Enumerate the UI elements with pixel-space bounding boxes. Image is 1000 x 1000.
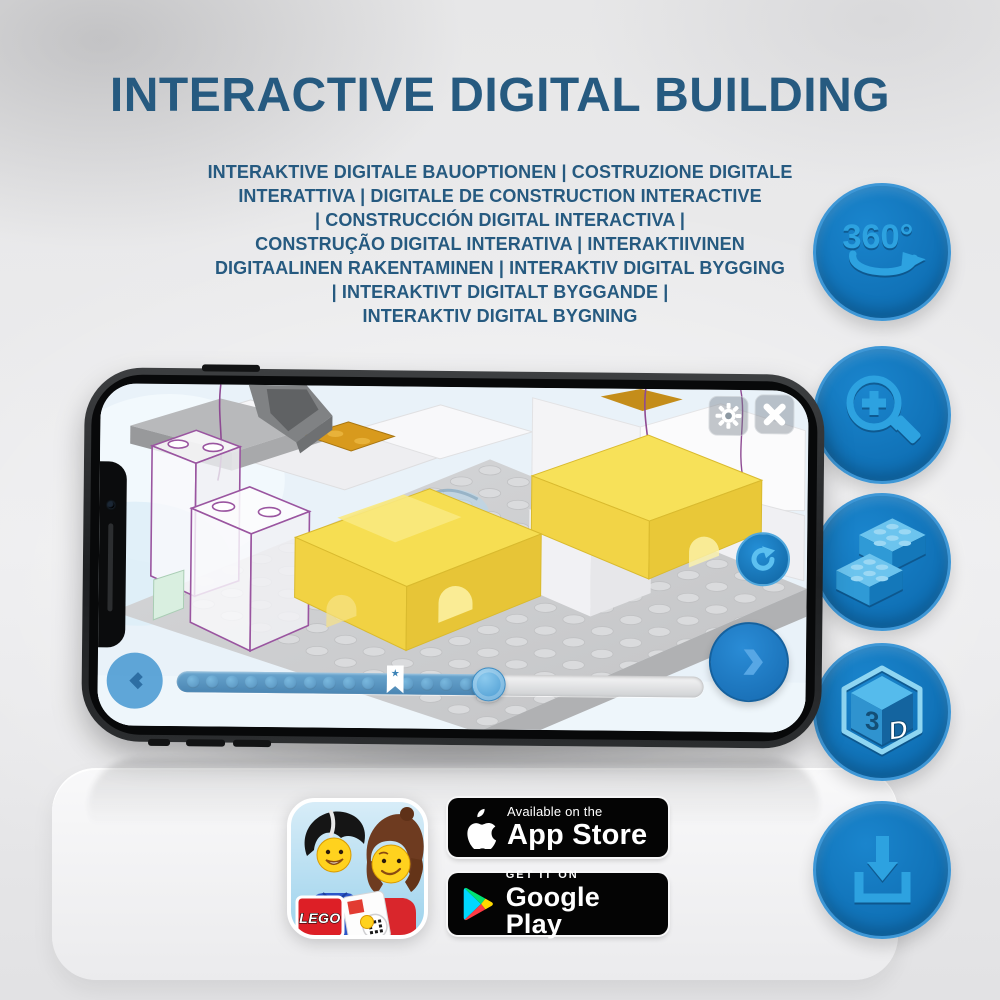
close-icon <box>762 402 786 426</box>
feature-download-badge <box>813 801 951 939</box>
chevron-left-icon <box>120 666 150 696</box>
feature-zoom-badge <box>813 346 951 484</box>
feature-bricks-badge <box>813 493 951 631</box>
phone-mockup: ★ <box>81 367 825 749</box>
gear-icon <box>715 403 741 429</box>
progress-dot <box>362 677 375 690</box>
progress-dot <box>264 676 277 689</box>
apple-icon <box>462 807 496 849</box>
360-label: 360° <box>842 218 913 256</box>
progress-dot <box>303 676 316 689</box>
chevron-right-icon <box>727 640 771 684</box>
google-play-icon <box>462 885 495 923</box>
3d-cube-icon: 3 D <box>832 662 932 762</box>
front-camera <box>108 501 115 508</box>
camera-notch <box>97 461 127 647</box>
progress-dot <box>245 676 258 689</box>
google-play-name: Google Play <box>506 884 658 938</box>
settings-button[interactable] <box>708 396 748 436</box>
app-store-tagline: Available on the <box>507 805 647 818</box>
progress-fill <box>177 671 489 695</box>
feature-360-badge: 360° <box>813 183 951 321</box>
lego-app-icon: LEGO <box>287 798 428 939</box>
progress-dot <box>206 675 219 688</box>
marketing-graphic: INTERACTIVE DIGITAL BUILDING INTERAKTIVE… <box>0 0 1000 1000</box>
google-play-tagline: GET IT ON <box>506 870 658 881</box>
lego-logo-text: LEGO <box>299 910 341 926</box>
lego-bricks-icon <box>830 510 934 614</box>
mute-switch <box>148 739 170 746</box>
power-button <box>202 364 260 372</box>
previous-step-button[interactable] <box>106 652 163 709</box>
close-button[interactable] <box>754 394 794 434</box>
zoom-in-icon <box>832 365 932 465</box>
app-screen: ★ <box>97 383 809 732</box>
cube-letter-d: D <box>889 713 908 745</box>
progress-dot <box>420 678 433 691</box>
progress-dot <box>186 675 199 688</box>
app-store-name: App Store <box>507 821 647 850</box>
lego-app-icon-art: LEGO <box>287 798 428 939</box>
progress-dot <box>323 677 336 690</box>
progress-dot <box>459 678 472 691</box>
download-icon <box>832 820 932 920</box>
page-subtitle-translations: INTERAKTIVE DIGITALE BAUOPTIONEN | COSTR… <box>120 160 880 328</box>
rotate-model-button[interactable] <box>736 532 791 587</box>
rotate-icon <box>747 543 779 575</box>
page-title: INTERACTIVE DIGITAL BUILDING <box>0 68 1000 123</box>
cube-letter-3: 3 <box>865 705 879 737</box>
progress-dot <box>284 676 297 689</box>
feature-3d-badge: 3 D <box>813 643 951 781</box>
google-play-badge[interactable]: GET IT ON Google Play <box>448 873 668 935</box>
star-icon: ★ <box>391 668 400 679</box>
progress-dot <box>342 677 355 690</box>
volume-up-button <box>186 739 225 746</box>
next-step-button[interactable] <box>709 622 790 703</box>
progress-dot <box>225 676 238 689</box>
volume-down-button <box>233 740 271 747</box>
speaker-slit <box>107 523 113 611</box>
app-store-badge[interactable]: Available on the App Store <box>448 798 668 857</box>
progress-handle[interactable] <box>472 667 506 701</box>
progress-dot <box>440 678 453 691</box>
360-rotation-icon: 360° <box>830 200 934 304</box>
